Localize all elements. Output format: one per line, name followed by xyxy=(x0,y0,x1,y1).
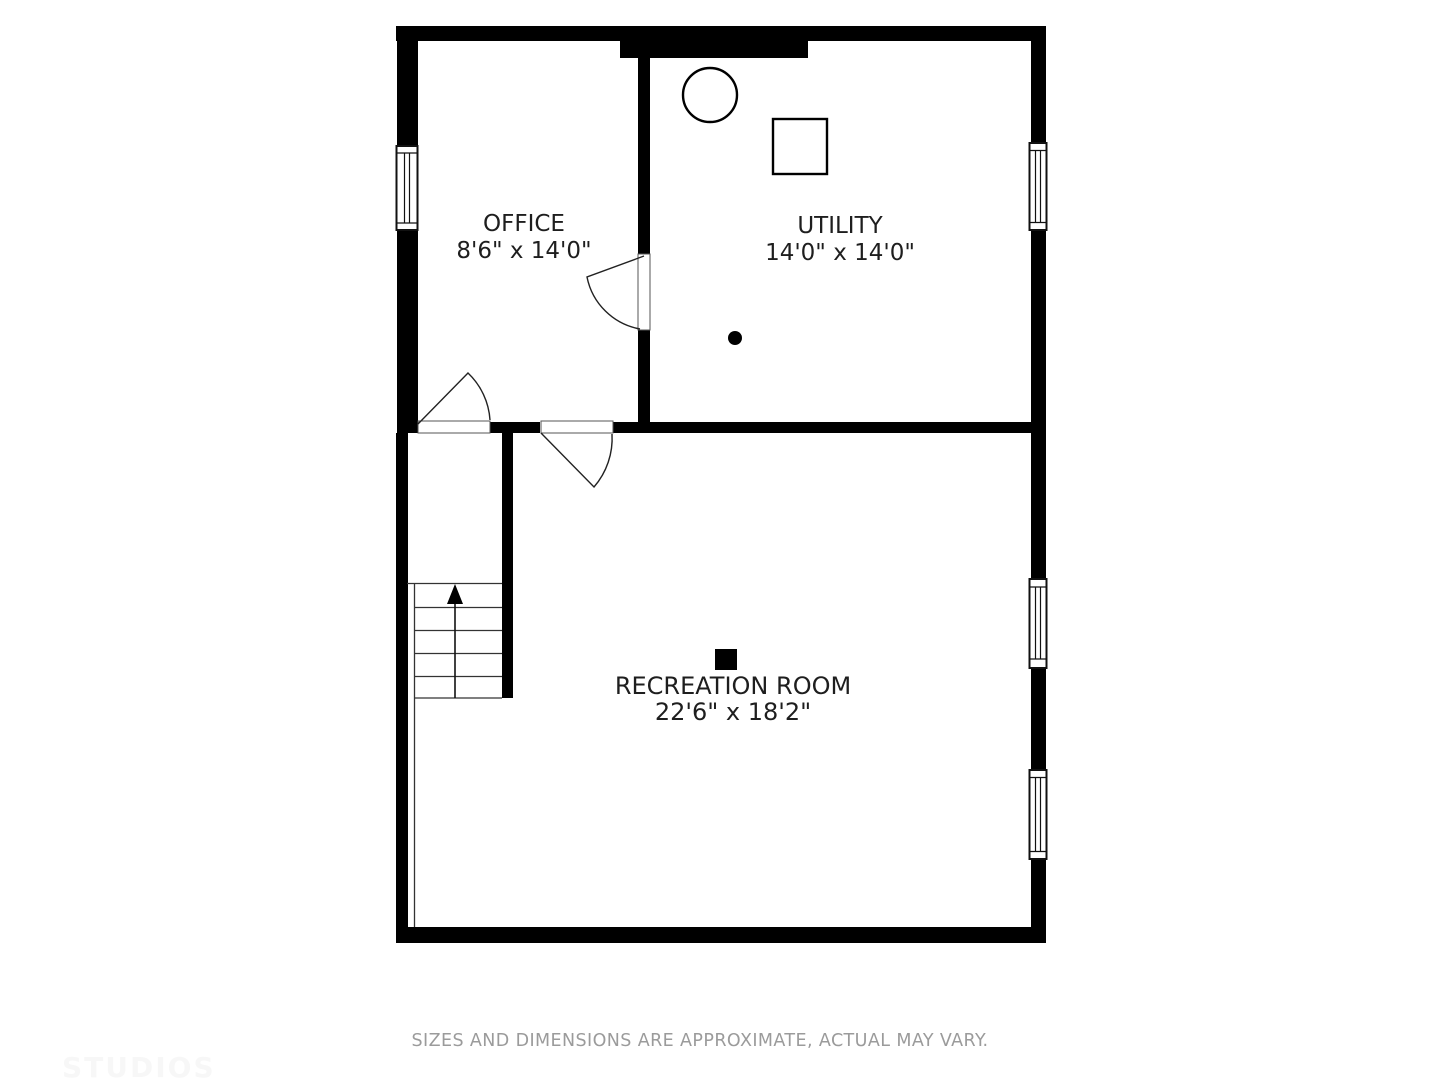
wall-bottom xyxy=(396,927,1046,943)
office-dimensions: 8'6" x 14'0" xyxy=(456,238,591,265)
recreation-name: RECREATION ROOM xyxy=(615,674,851,700)
stair-treads xyxy=(414,608,502,699)
wall-left-lower xyxy=(396,433,408,943)
floor-plan: OFFICE 8'6" x 14'0" UTILITY 14'0" x 14'0… xyxy=(0,0,1440,1080)
door-recreation xyxy=(541,421,613,487)
fixtures xyxy=(683,68,827,670)
wall-office-utility-a xyxy=(638,58,650,254)
stairs-up-arrow xyxy=(447,584,463,698)
utility-dimensions: 14'0" x 14'0" xyxy=(765,240,915,267)
window-recreation-right-2 xyxy=(1030,770,1047,859)
floorplan-canvas xyxy=(0,0,1440,1080)
wall-top xyxy=(396,26,1046,41)
office-name: OFFICE xyxy=(456,211,591,238)
doors xyxy=(418,254,650,487)
disclaimer-text: SIZES AND DIMENSIONS ARE APPROXIMATE, AC… xyxy=(412,1031,989,1051)
room-label-utility: UTILITY 14'0" x 14'0" xyxy=(765,213,915,267)
room-label-recreation: RECREATION ROOM 22'6" x 18'2" xyxy=(615,674,851,725)
door-office-to-utility xyxy=(587,254,650,330)
utility-name: UTILITY xyxy=(765,213,915,240)
wall-stair-enclosure xyxy=(502,433,513,698)
wall-top-beam xyxy=(620,41,808,58)
window-recreation-right-1 xyxy=(1030,579,1047,668)
water-heater-icon xyxy=(683,68,737,122)
room-label-office: OFFICE 8'6" x 14'0" xyxy=(456,211,591,265)
studio-watermark: STUDIOS xyxy=(62,1051,216,1084)
staircase xyxy=(407,583,502,927)
furnace-icon xyxy=(773,119,827,174)
door-office-to-landing xyxy=(418,373,490,433)
wall-office-utility-b xyxy=(638,330,650,433)
window-office-left xyxy=(397,146,418,230)
wall-horizontal-mid xyxy=(490,422,540,433)
support-post-icon xyxy=(715,649,737,670)
walls xyxy=(396,26,1046,943)
floor-drain-icon xyxy=(728,331,742,345)
window-utility-right xyxy=(1030,143,1047,230)
recreation-dimensions: 22'6" x 18'2" xyxy=(615,700,851,726)
wall-horizontal-right xyxy=(613,422,1031,433)
